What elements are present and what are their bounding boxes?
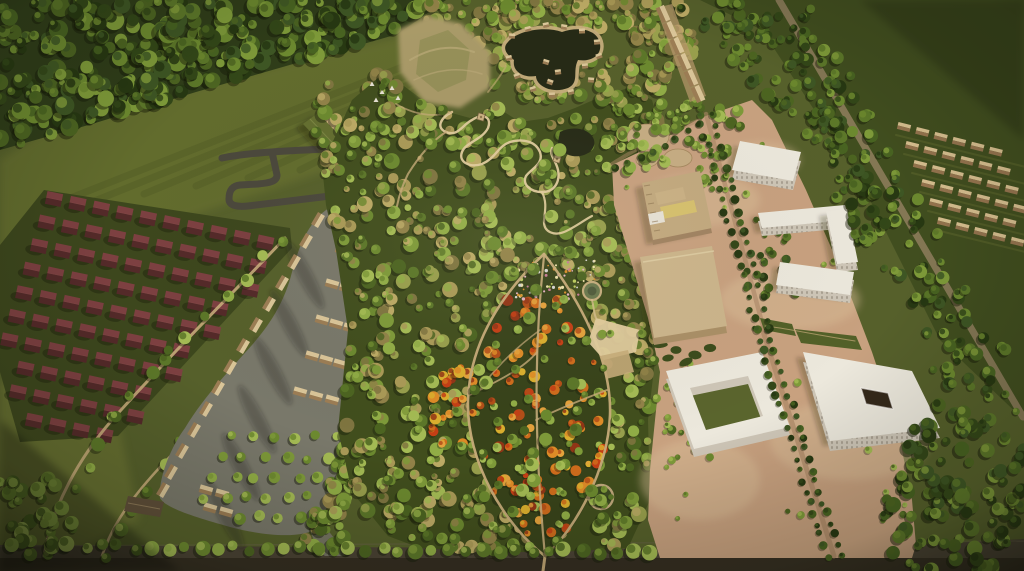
aerial-masterplan-render — [0, 0, 1024, 571]
vignette-overlay — [0, 0, 1024, 571]
render-canvas — [0, 0, 1024, 571]
